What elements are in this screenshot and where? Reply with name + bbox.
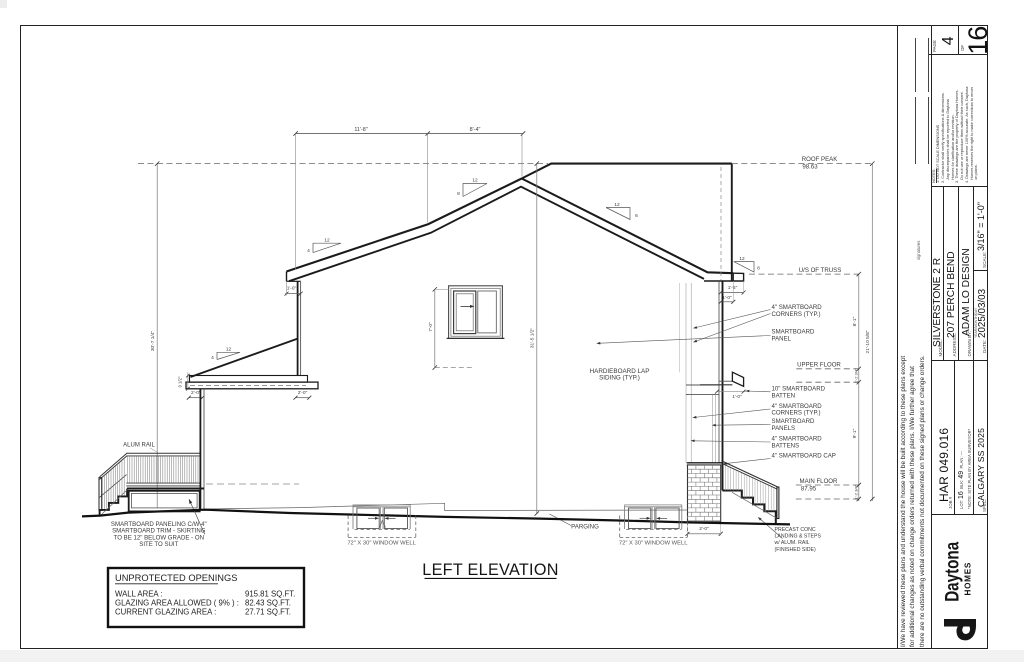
svg-text:LANDING & STEPS: LANDING & STEPS: [775, 534, 822, 540]
svg-text:7'-0": 7'-0": [428, 322, 434, 332]
svg-text:SIDING (TYP.): SIDING (TYP.): [599, 375, 640, 382]
svg-text:ROOF PEAK: ROOF PEAK: [802, 156, 838, 163]
svg-text:2'-0": 2'-0": [191, 390, 201, 396]
svg-text:4: 4: [211, 355, 214, 361]
svg-text:WALL AREA :: WALL AREA :: [115, 590, 163, 599]
svg-text:BATTENS: BATTENS: [772, 442, 800, 449]
svg-text:82.43 SQ.FT.: 82.43 SQ.FT.: [245, 599, 291, 608]
svg-text:PARGING: PARGING: [571, 524, 599, 531]
svg-text:1'-0": 1'-0": [732, 394, 742, 400]
svg-text:9'-1": 9'-1": [852, 428, 858, 438]
svg-text:9 1/2": 9 1/2": [178, 376, 183, 388]
svg-text:w/ ALUM. RAIL: w/ ALUM. RAIL: [775, 540, 810, 546]
svg-text:PRECAST CONC: PRECAST CONC: [775, 527, 816, 533]
svg-text:27.71 SQ.FT.: 27.71 SQ.FT.: [245, 608, 291, 617]
svg-text:BATTEN: BATTEN: [772, 392, 796, 399]
svg-text:UPPER FLOOR: UPPER FLOOR: [797, 361, 841, 368]
svg-text:8: 8: [757, 266, 760, 272]
svg-text:8'-4": 8'-4": [470, 127, 481, 133]
svg-text:8'-1": 8'-1": [852, 316, 858, 326]
svg-text:1'-2 3/4": 1'-2 3/4": [853, 484, 858, 499]
svg-text:4: 4: [307, 248, 310, 254]
svg-text:CORNERS (TYP.): CORNERS (TYP.): [772, 311, 821, 318]
svg-text:12: 12: [472, 178, 478, 184]
svg-text:4" SMARTBOARD CAP: 4" SMARTBOARD CAP: [772, 452, 836, 459]
svg-text:U/S OF TRUSS: U/S OF TRUSS: [799, 267, 842, 274]
svg-text:12: 12: [226, 346, 232, 352]
svg-text:GLAZING AREA ALLOWED ( 9% ) :: GLAZING AREA ALLOWED ( 9% ) :: [115, 599, 239, 608]
svg-text:72" X 30" WINDOW WELL: 72" X 30" WINDOW WELL: [619, 540, 688, 546]
svg-text:CORNERS (TYP.): CORNERS (TYP.): [772, 410, 821, 417]
svg-text:LEFT ELEVATION: LEFT ELEVATION: [422, 561, 558, 579]
svg-text:8: 8: [457, 191, 460, 197]
svg-text:(FINISHED SIDE): (FINISHED SIDE): [775, 547, 816, 553]
svg-text:1'-0": 1'-0": [722, 295, 732, 301]
svg-text:21'-10 5/8": 21'-10 5/8": [865, 330, 871, 353]
svg-text:2'-0": 2'-0": [699, 526, 709, 532]
svg-text:12: 12: [614, 202, 620, 208]
svg-text:HOMES: HOMES: [963, 562, 972, 596]
svg-text:CURRENT GLAZING AREA :: CURRENT GLAZING AREA :: [115, 608, 216, 617]
svg-text:72" X 30" WINDOW WELL: 72" X 30" WINDOW WELL: [347, 540, 416, 546]
svg-text:98.63: 98.63: [802, 163, 818, 170]
svg-text:ALUM RAIL: ALUM RAIL: [123, 443, 155, 449]
svg-text:915.81 SQ.FT.: 915.81 SQ.FT.: [245, 590, 295, 599]
svg-text:87.95: 87.95: [801, 485, 817, 492]
svg-text:SITE TO SUIT: SITE TO SUIT: [139, 541, 178, 548]
svg-text:11'-8": 11'-8": [354, 127, 367, 133]
svg-text:PANELS: PANELS: [772, 425, 796, 432]
svg-text:1'-2 3/4": 1'-2 3/4": [853, 368, 858, 383]
svg-text:31'-5 1/2": 31'-5 1/2": [530, 328, 536, 349]
svg-text:1'-6": 1'-6": [728, 285, 738, 291]
svg-text:Daytona: Daytona: [940, 542, 962, 602]
svg-text:12: 12: [739, 256, 745, 262]
svg-text:MAIN FLOOR: MAIN FLOOR: [800, 478, 839, 485]
svg-text:12: 12: [324, 238, 330, 244]
svg-text:30'-7 1/4": 30'-7 1/4": [150, 331, 156, 352]
svg-text:PANEL: PANEL: [772, 335, 792, 342]
svg-text:UNPROTECTED OPENINGS: UNPROTECTED OPENINGS: [115, 573, 237, 583]
svg-text:1'-0": 1'-0": [287, 286, 297, 292]
svg-text:2'-0": 2'-0": [298, 390, 308, 396]
svg-text:6: 6: [635, 213, 638, 219]
